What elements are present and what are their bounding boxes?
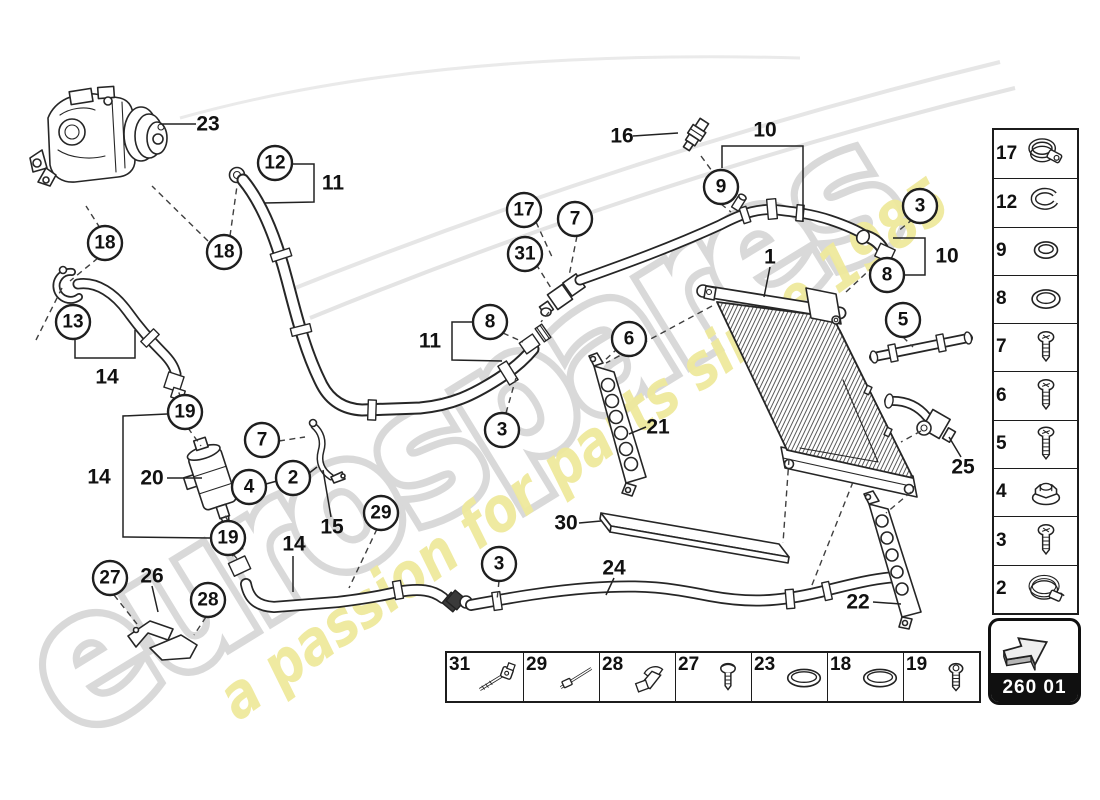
callout-number: 17 xyxy=(513,200,534,221)
callout-circle-19[interactable]: 19 xyxy=(168,395,202,429)
part-number: 28 xyxy=(602,655,629,676)
callout-label-30: 30 xyxy=(554,512,577,535)
callout-number: 3 xyxy=(915,196,926,217)
callout-number: 19 xyxy=(174,402,195,423)
sidebar-part-5[interactable]: 5 xyxy=(994,420,1077,468)
callout-label-21: 21 xyxy=(646,416,670,439)
callout-circle-3[interactable]: 3 xyxy=(485,413,519,447)
callout-number: 13 xyxy=(62,312,83,333)
callout-circle-2[interactable]: 2 xyxy=(276,461,310,495)
sidebar-part-6[interactable]: 6 xyxy=(994,371,1077,419)
snap-ring-icon xyxy=(1023,183,1069,223)
cable-tie-mount-icon xyxy=(476,659,522,699)
callout-circle-9[interactable]: 9 xyxy=(704,170,738,204)
callout-circle-28[interactable]: 28 xyxy=(191,583,225,617)
callout-number: 6 xyxy=(624,329,635,350)
sidebar-part-4[interactable]: 4 xyxy=(994,468,1077,516)
callout-label-16: 16 xyxy=(610,125,633,148)
callout-circle-27[interactable]: 27 xyxy=(93,561,127,595)
screw-icon xyxy=(1023,328,1069,368)
callout-label-26: 26 xyxy=(140,565,163,588)
pipe-clamp-icon xyxy=(1023,134,1069,174)
callout-label-23: 23 xyxy=(196,113,219,136)
callout-circle-3[interactable]: 3 xyxy=(903,189,937,223)
callout-number: 19 xyxy=(217,528,238,549)
screw-icon xyxy=(1023,521,1069,561)
callout-number: 12 xyxy=(264,153,285,174)
callout-number: 7 xyxy=(257,430,268,451)
callout-number: 5 xyxy=(898,310,909,331)
callout-circle-8[interactable]: 8 xyxy=(473,305,507,339)
callout-number: 3 xyxy=(494,554,505,575)
callout-number: 2 xyxy=(288,468,299,489)
screw-icon xyxy=(1023,376,1069,416)
part-number: 17 xyxy=(996,144,1023,165)
callout-circle-8[interactable]: 8 xyxy=(870,258,904,292)
callout-label-14: 14 xyxy=(282,533,306,556)
part-number: 23 xyxy=(754,655,781,676)
direction-arrow-icon xyxy=(991,621,1078,673)
callout-number: 7 xyxy=(570,209,581,230)
strip-part-28[interactable]: 28 xyxy=(599,653,675,701)
part-number: 9 xyxy=(996,241,1023,262)
part-number: 3 xyxy=(996,531,1023,552)
callout-circle-17[interactable]: 17 xyxy=(507,193,541,227)
callout-label-10: 10 xyxy=(935,245,958,268)
sidebar-part-17[interactable]: 17 xyxy=(994,130,1077,178)
flange-nut-icon xyxy=(1023,473,1069,513)
callout-label-25: 25 xyxy=(951,456,975,479)
strip-part-29[interactable]: 29 xyxy=(523,653,599,701)
part-number: 12 xyxy=(996,193,1023,214)
callout-circle-7[interactable]: 7 xyxy=(558,202,592,236)
callout-label-10: 10 xyxy=(753,119,776,142)
callout-number: 31 xyxy=(514,244,536,265)
strip-part-27[interactable]: 27 xyxy=(675,653,751,701)
callout-number: 3 xyxy=(497,420,508,441)
callout-circle-29[interactable]: 29 xyxy=(364,496,398,530)
pipe-5 xyxy=(869,331,972,363)
callout-circle-12[interactable]: 12 xyxy=(258,146,292,180)
strip-part-31[interactable]: 31 xyxy=(447,653,523,701)
callout-circle-5[interactable]: 5 xyxy=(886,303,920,337)
callout-circle-18[interactable]: 18 xyxy=(207,235,241,269)
o-ring-icon xyxy=(1023,280,1069,320)
callout-circle-18[interactable]: 18 xyxy=(88,226,122,260)
callout-label-11: 11 xyxy=(419,330,442,353)
condenser-1 xyxy=(697,285,917,497)
part-number: 31 xyxy=(449,655,476,676)
callout-number: 4 xyxy=(244,477,255,498)
parts-diagram-page: eurospares a passion for parts since 198… xyxy=(0,0,1100,800)
callout-label-1: 1 xyxy=(764,246,776,269)
part-number: 2 xyxy=(996,579,1023,600)
callout-number: 29 xyxy=(370,503,391,524)
sidebar-part-8[interactable]: 8 xyxy=(994,275,1077,323)
o-ring-small-icon xyxy=(1023,231,1069,271)
watermark-swoosh xyxy=(180,57,800,118)
callout-number: 27 xyxy=(99,568,120,589)
refrigerant-hose-24 xyxy=(446,570,904,610)
o-ring-wide-icon xyxy=(781,659,827,699)
page-code-label: 260 01 xyxy=(991,673,1078,702)
part-number: 8 xyxy=(996,289,1023,310)
strip-part-19[interactable]: 19 xyxy=(903,653,979,701)
fastener-legend-strip: 31292827231819 xyxy=(445,651,981,703)
callout-label-24: 24 xyxy=(602,557,626,580)
callout-label-11: 11 xyxy=(322,172,345,195)
part-number: 29 xyxy=(526,655,553,676)
strip-part-23[interactable]: 23 xyxy=(751,653,827,701)
part-number: 19 xyxy=(906,655,933,676)
condenser-bracket-22 xyxy=(864,491,921,629)
sidebar-part-3[interactable]: 3 xyxy=(994,516,1077,564)
callout-number: 8 xyxy=(485,312,496,333)
ac-compressor-illustration xyxy=(30,86,167,186)
seal-strip-30 xyxy=(600,513,789,563)
callout-circle-19[interactable]: 19 xyxy=(211,521,245,555)
part-number: 18 xyxy=(830,655,857,676)
part-number: 7 xyxy=(996,337,1023,358)
callout-label-15: 15 xyxy=(320,516,344,539)
fitting-25 xyxy=(884,394,955,443)
callout-number: 8 xyxy=(882,265,893,286)
pan-screw-icon xyxy=(705,659,751,699)
part-number: 27 xyxy=(678,655,705,676)
sidebar-part-12[interactable]: 12 xyxy=(994,178,1077,226)
sidebar-part-9[interactable]: 9 xyxy=(994,227,1077,275)
callout-label-14: 14 xyxy=(95,366,119,389)
part-number: 4 xyxy=(996,482,1023,503)
callout-circle-3[interactable]: 3 xyxy=(482,547,516,581)
sidebar-part-7[interactable]: 7 xyxy=(994,323,1077,371)
screw-long-icon xyxy=(1023,424,1069,464)
cable-clip-icon xyxy=(629,659,675,699)
callout-number: 18 xyxy=(94,233,115,254)
callout-number: 18 xyxy=(213,242,234,263)
o-ring-wide-icon xyxy=(857,659,903,699)
callout-number: 9 xyxy=(716,177,727,198)
part-number: 5 xyxy=(996,434,1023,455)
callout-circle-31[interactable]: 31 xyxy=(508,237,542,271)
callout-label-20: 20 xyxy=(140,467,163,490)
sidebar-part-2[interactable]: 2 xyxy=(994,565,1077,613)
strip-part-18[interactable]: 18 xyxy=(827,653,903,701)
cable-tie-icon xyxy=(553,659,599,699)
part-number: 6 xyxy=(996,386,1023,407)
callout-label-22: 22 xyxy=(846,591,869,614)
callout-circle-6[interactable]: 6 xyxy=(612,322,646,356)
page-code-box: 260 01 xyxy=(988,618,1081,705)
socket-bolt-icon xyxy=(933,659,979,699)
fastener-legend-sidebar: 171298765432 xyxy=(992,128,1079,615)
callout-label-14: 14 xyxy=(87,466,111,489)
callout-circle-7[interactable]: 7 xyxy=(245,423,279,457)
callout-number: 28 xyxy=(197,590,218,611)
callout-circle-4[interactable]: 4 xyxy=(232,470,266,504)
callout-circle-13[interactable]: 13 xyxy=(56,305,90,339)
hose-clamp-icon xyxy=(1023,569,1069,609)
